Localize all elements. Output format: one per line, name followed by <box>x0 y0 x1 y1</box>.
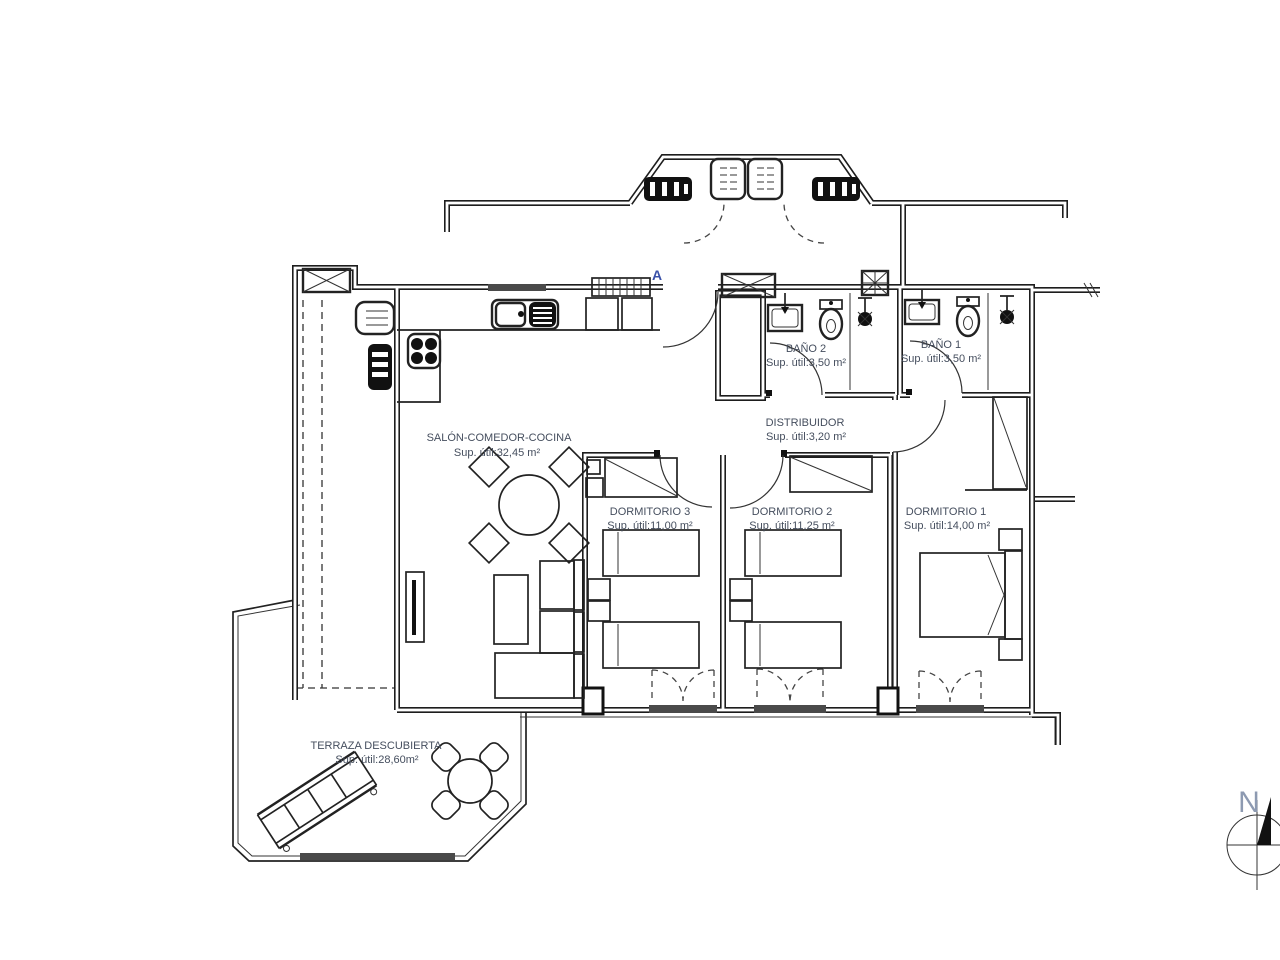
kitchen-cabinet <box>586 298 618 330</box>
dormitorio1-door-swing <box>893 400 945 452</box>
dining-table-symbol <box>469 447 589 563</box>
room-label-bano1: BAÑO 1 <box>921 338 961 351</box>
double-bed-symbol <box>920 551 1022 639</box>
bed-symbol <box>603 530 699 668</box>
washbasin-symbol <box>768 293 802 331</box>
room-area-dormitorio1: Sup. útil:14,00 m² <box>904 520 991 532</box>
washbasin-symbol <box>905 290 939 324</box>
floor-plan-svg: N A SALÓN-COMEDOR-COCINA Sup. útil:32,45… <box>0 0 1280 960</box>
room-area-salon: Sup. útil:32,45 m² <box>454 447 541 459</box>
room-label-terraza: TERRAZA DESCUBIERTA <box>310 740 442 752</box>
sofa-symbol <box>495 560 584 698</box>
dormitorio3-door-swing <box>660 455 712 507</box>
sun-lounger-symbol <box>257 752 380 855</box>
toilet-symbol <box>957 297 979 336</box>
shaft-symbol <box>303 269 350 292</box>
kitchen-cabinet <box>622 298 652 330</box>
kitchen-area <box>356 298 660 402</box>
lobby-door-panel <box>711 159 745 199</box>
north-letter: N <box>1238 786 1260 819</box>
terrace-table-symbol <box>429 740 511 822</box>
stove-symbol <box>408 334 440 368</box>
nightstand-symbol <box>999 529 1022 550</box>
toilet-symbol <box>820 300 842 339</box>
room-area-dormitorio2: Sup. útil:11,25 m² <box>749 520 835 532</box>
floor-plan-canvas: N A SALÓN-COMEDOR-COCINA Sup. útil:32,45… <box>0 0 1280 960</box>
nightstand-symbol <box>730 579 752 600</box>
bano2-fixtures <box>768 293 872 390</box>
room-area-bano2: Sup. útil:3,50 m² <box>766 357 846 369</box>
washer-symbol <box>368 344 392 390</box>
room-label-bano2: BAÑO 2 <box>786 342 826 355</box>
entry-door-swing <box>663 292 718 347</box>
wardrobe-symbol <box>586 458 677 497</box>
french-window-swings <box>652 669 981 702</box>
section-marker-a: A <box>652 267 662 283</box>
room-label-salon: SALÓN-COMEDOR-COCINA <box>427 431 573 444</box>
shower-symbol <box>1000 296 1014 324</box>
elevator-symbol <box>644 177 692 201</box>
terrace-outline <box>233 600 1055 861</box>
room-area-dormitorio3: Sup. útil:11,00 m² <box>607 520 693 532</box>
walls <box>295 157 1100 745</box>
windows-and-piers <box>303 269 1098 714</box>
vent-shaft-symbol <box>862 271 888 295</box>
room-label-dormitorio1: DORMITORIO 1 <box>906 506 986 518</box>
nightstand-symbol <box>999 639 1022 660</box>
elevator-lobby <box>644 159 860 243</box>
lobby-door-swings <box>684 203 824 243</box>
room-label-distribuidor: DISTRIBUIDOR <box>766 417 845 429</box>
dormitorio2-door-swing <box>730 455 783 508</box>
coffee-table-symbol <box>494 575 528 644</box>
shower-symbol <box>858 298 872 326</box>
dormitorio2-furniture <box>730 456 872 668</box>
nightstand-symbol <box>588 601 610 621</box>
walls <box>295 157 1100 745</box>
room-area-distribuidor: Sup. útil:3,20 m² <box>766 431 846 443</box>
living-dining-furniture <box>406 447 589 698</box>
wardrobe-symbol <box>965 397 1027 490</box>
north-arrow: N <box>1227 786 1280 890</box>
nightstand-symbol <box>730 601 752 621</box>
room-label-dormitorio3: DORMITORIO 3 <box>610 506 690 518</box>
nightstand-symbol <box>588 579 610 600</box>
room-label-dormitorio2: DORMITORIO 2 <box>752 506 832 518</box>
bed-symbol <box>745 530 841 668</box>
room-area-bano1: Sup. útil:3,50 m² <box>901 353 981 365</box>
water-heater-symbol <box>356 302 394 334</box>
wardrobe-symbol <box>790 456 872 492</box>
lobby-door-panel <box>748 159 782 199</box>
tv-symbol <box>406 572 424 642</box>
room-area-terraza: Sup. útil:28,60m² <box>335 754 418 766</box>
elevator-symbol <box>812 177 860 201</box>
dormitorio3-furniture <box>586 458 699 668</box>
sink-symbol <box>492 300 558 329</box>
